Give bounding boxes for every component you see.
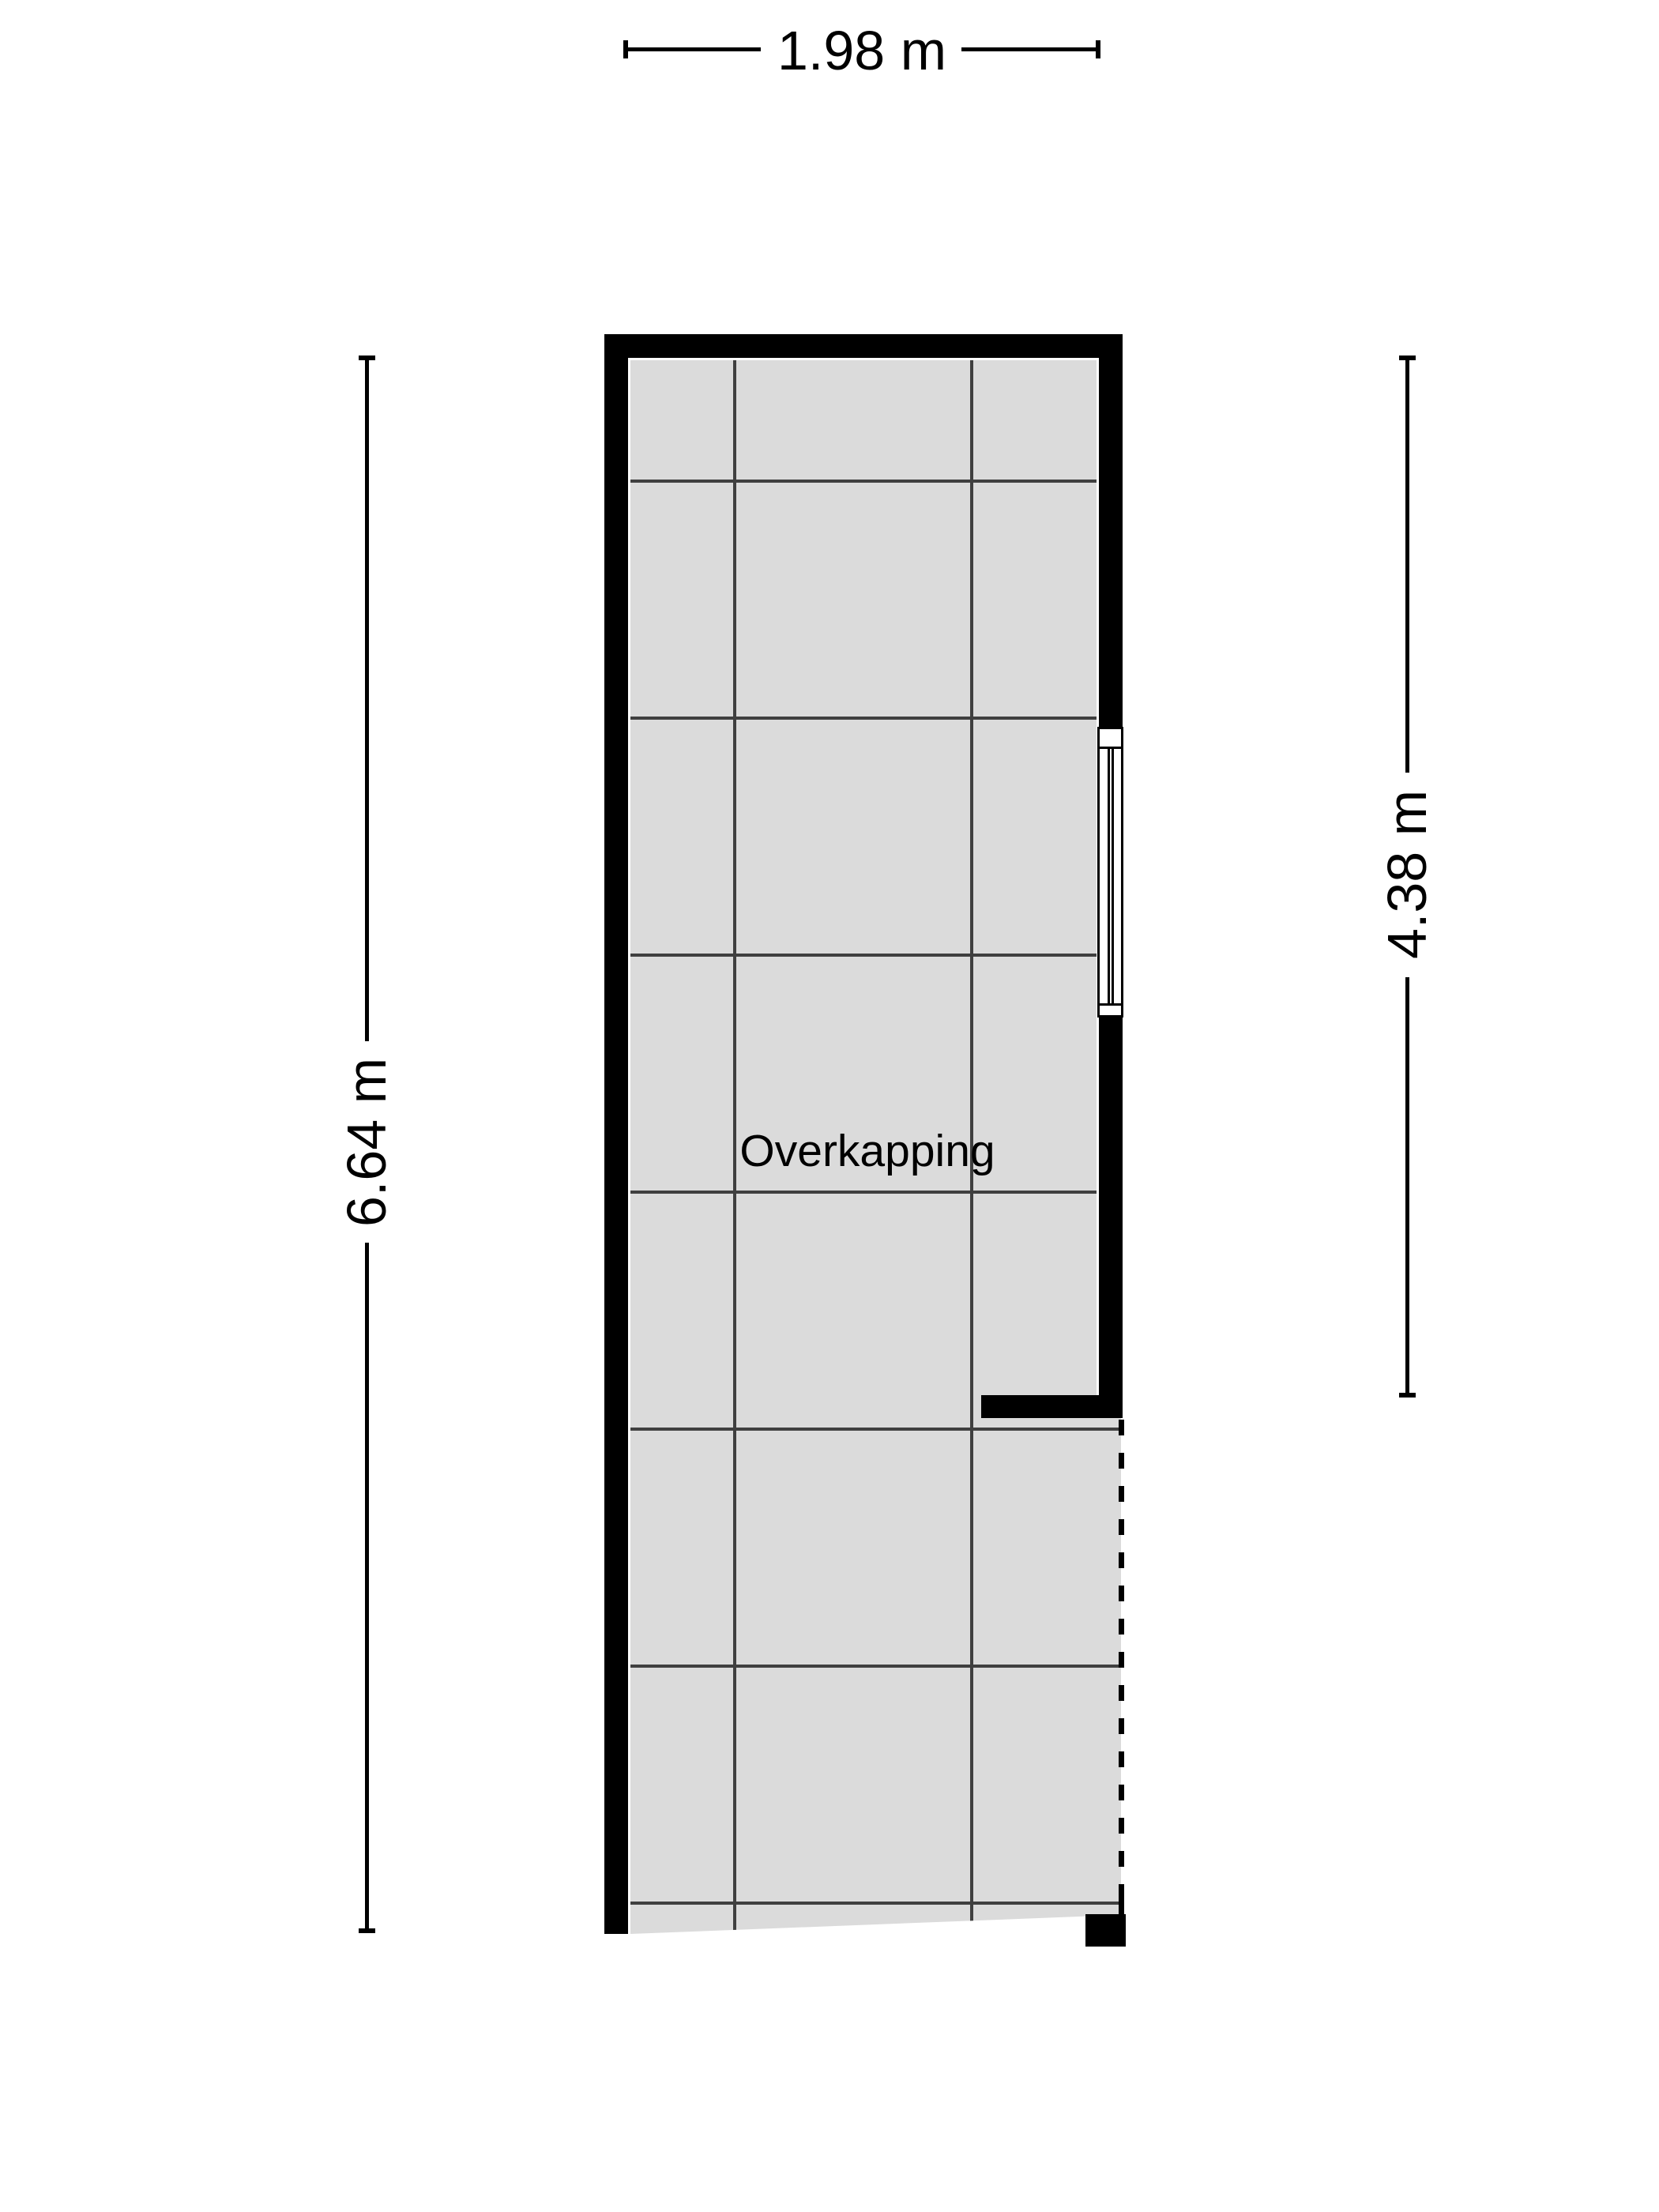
floor-tile-grid (0, 0, 1659, 2212)
dimension-top-tick-right (1096, 40, 1100, 58)
dimension-right-tick-bottom (1399, 1393, 1416, 1398)
dimension-top-line-left (626, 47, 761, 51)
corner-post (1085, 1914, 1126, 1947)
window-glazing-line (1108, 749, 1110, 1003)
wall-top (604, 334, 1123, 358)
dimension-top-label: 1.98 m (777, 19, 946, 82)
window-frame-bottom (1100, 1003, 1121, 1006)
floorplan-canvas: 1.98 m 6.64 m 4.38 m (0, 0, 1659, 2212)
dimension-right-label: 4.38 m (1375, 790, 1439, 959)
grid-line-horizontal (630, 1191, 1121, 1194)
open-side-dashed-line (1119, 1420, 1124, 1902)
dimension-left-line-bottom (365, 1243, 369, 1932)
room-label: Overkapping (739, 1125, 995, 1177)
dimension-top-line-right (961, 47, 1098, 51)
dimension-left-tick-bottom (359, 1928, 375, 1933)
grid-line-horizontal (630, 480, 1121, 483)
grid-line-horizontal (630, 1428, 1121, 1431)
dimension-top-tick-left (623, 40, 628, 58)
wall-right-upper (1099, 334, 1123, 728)
open-side-connector (1119, 1900, 1124, 1916)
grid-line-horizontal (630, 1902, 1121, 1905)
grid-line-horizontal (630, 717, 1121, 720)
dimension-left-tick-top (359, 355, 375, 360)
dimension-right-tick-top (1399, 355, 1416, 360)
window-symbol (1097, 727, 1123, 1018)
grid-line-horizontal (630, 1665, 1121, 1668)
window-glazing-line (1112, 749, 1114, 1003)
wall-right-lower (1099, 1018, 1123, 1418)
dimension-right-line-bottom (1405, 977, 1409, 1396)
grid-line-vertical (733, 360, 736, 1934)
grid-line-horizontal (630, 954, 1121, 957)
dimension-left-label: 6.64 m (335, 1058, 398, 1227)
dimension-right-line-top (1405, 357, 1409, 773)
wall-left (604, 334, 628, 1934)
wall-stub-interior (981, 1395, 1123, 1418)
window-frame-top (1100, 747, 1121, 749)
dimension-left-line-top (365, 357, 369, 1041)
